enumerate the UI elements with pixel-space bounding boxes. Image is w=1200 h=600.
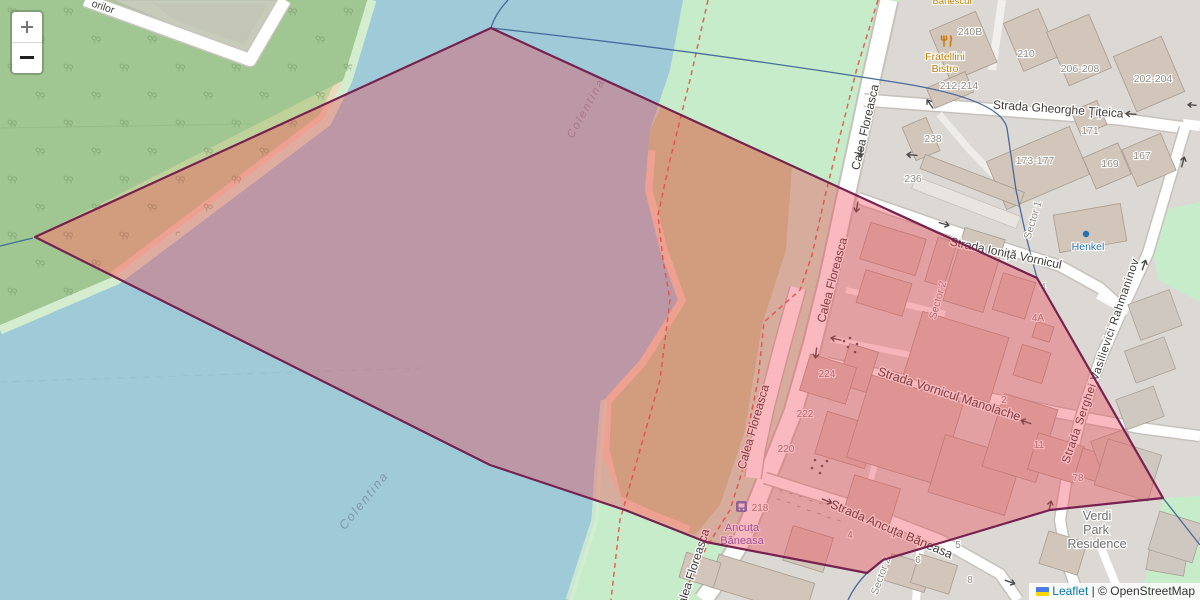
- svg-text:Residence: Residence: [1067, 537, 1126, 551]
- svg-text:Henkel: Henkel: [1072, 241, 1105, 253]
- svg-text:8: 8: [967, 575, 973, 586]
- svg-text:212-214: 212-214: [940, 80, 979, 92]
- svg-text:202-204: 202-204: [1134, 73, 1173, 85]
- svg-text:173-177: 173-177: [1016, 155, 1055, 167]
- svg-text:171: 171: [1081, 125, 1099, 137]
- svg-text:236: 236: [904, 173, 922, 185]
- svg-text:Park: Park: [1083, 523, 1109, 537]
- svg-text:169: 169: [1101, 158, 1119, 170]
- svg-text:6: 6: [915, 555, 921, 566]
- svg-text:240B: 240B: [958, 26, 983, 38]
- svg-text:238: 238: [924, 133, 942, 145]
- svg-text:210: 210: [1017, 48, 1035, 60]
- svg-text:167: 167: [1133, 150, 1151, 162]
- svg-text:Fratellini: Fratellini: [925, 51, 965, 63]
- svg-text:Verdi: Verdi: [1083, 509, 1112, 523]
- svg-text:206-208: 206-208: [1061, 63, 1100, 75]
- svg-text:Bistro: Bistro: [932, 63, 959, 75]
- svg-text:5: 5: [955, 540, 961, 551]
- svg-text:Bănescul: Bănescul: [932, 0, 971, 7]
